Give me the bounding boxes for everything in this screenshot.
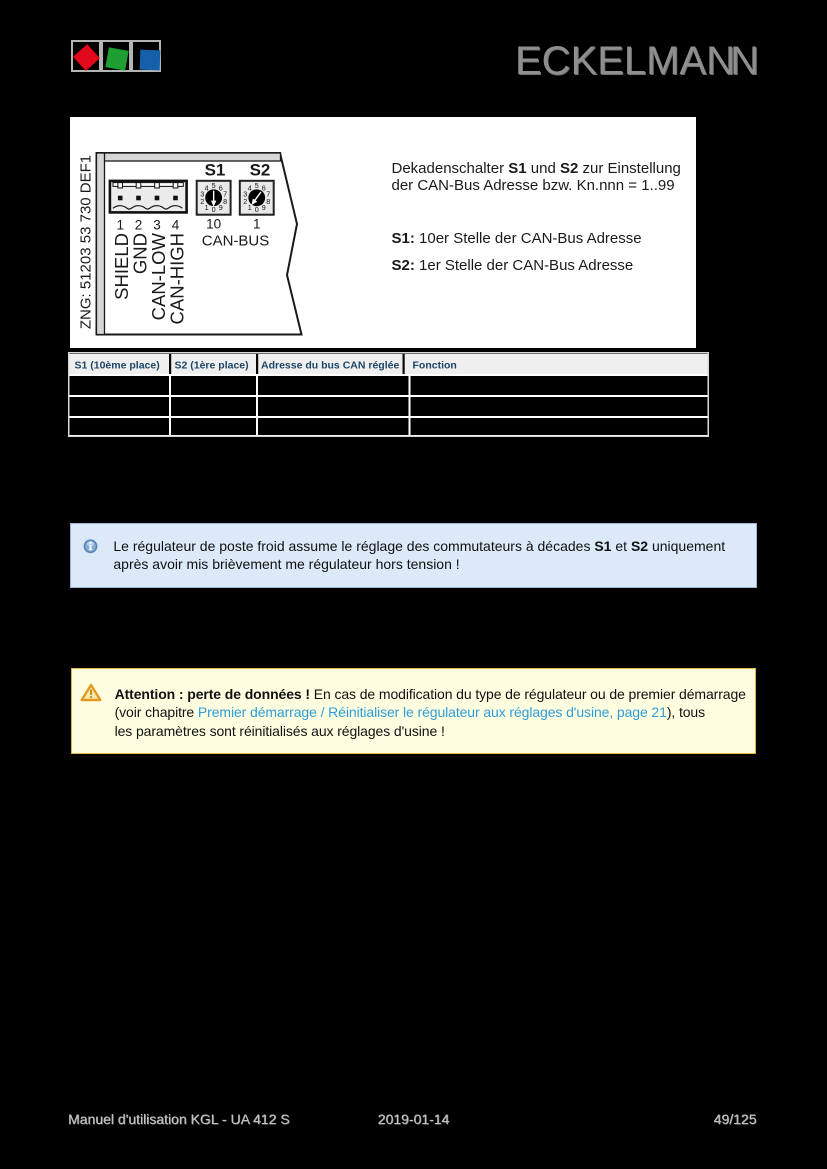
svg-text:1: 1 xyxy=(248,203,252,212)
svg-text:0: 0 xyxy=(255,205,259,214)
svg-text:S2 (1ère place): S2 (1ère place) xyxy=(175,359,249,371)
svg-text:1: 1 xyxy=(116,218,124,233)
svg-text:9: 9 xyxy=(219,203,223,212)
svg-text:9: 9 xyxy=(262,203,266,212)
svg-text:S2: S2 xyxy=(250,161,271,180)
svg-text:3: 3 xyxy=(243,189,247,198)
svg-text:10: 10 xyxy=(206,217,221,232)
svg-text:1: 1 xyxy=(253,217,261,232)
svg-text:Fonction: Fonction xyxy=(413,359,457,371)
svg-text:8: 8 xyxy=(266,197,270,206)
svg-text:S1 (10ème place): S1 (10ème place) xyxy=(75,359,160,371)
svg-text:2: 2 xyxy=(135,218,143,233)
svg-text:CAN-HIGH: CAN-HIGH xyxy=(166,233,187,324)
svg-text:6: 6 xyxy=(219,183,223,192)
svg-text:5: 5 xyxy=(212,181,216,190)
svg-text:8: 8 xyxy=(223,197,227,206)
svg-text:5: 5 xyxy=(255,181,259,190)
svg-text:4: 4 xyxy=(248,183,252,192)
svg-text:3: 3 xyxy=(153,218,161,233)
svg-text:1: 1 xyxy=(205,203,209,212)
svg-text:Adresse du bus CAN réglée: Adresse du bus CAN réglée xyxy=(261,359,399,371)
svg-text:S1: S1 xyxy=(205,161,226,180)
svg-text:4: 4 xyxy=(205,183,209,192)
svg-text:4: 4 xyxy=(172,218,180,233)
svg-text:6: 6 xyxy=(262,183,266,192)
svg-text:CAN-BUS: CAN-BUS xyxy=(202,233,270,250)
svg-text:3: 3 xyxy=(200,189,204,198)
svg-text:ZNG: 51203 53 730 DEF1: ZNG: 51203 53 730 DEF1 xyxy=(78,155,95,329)
